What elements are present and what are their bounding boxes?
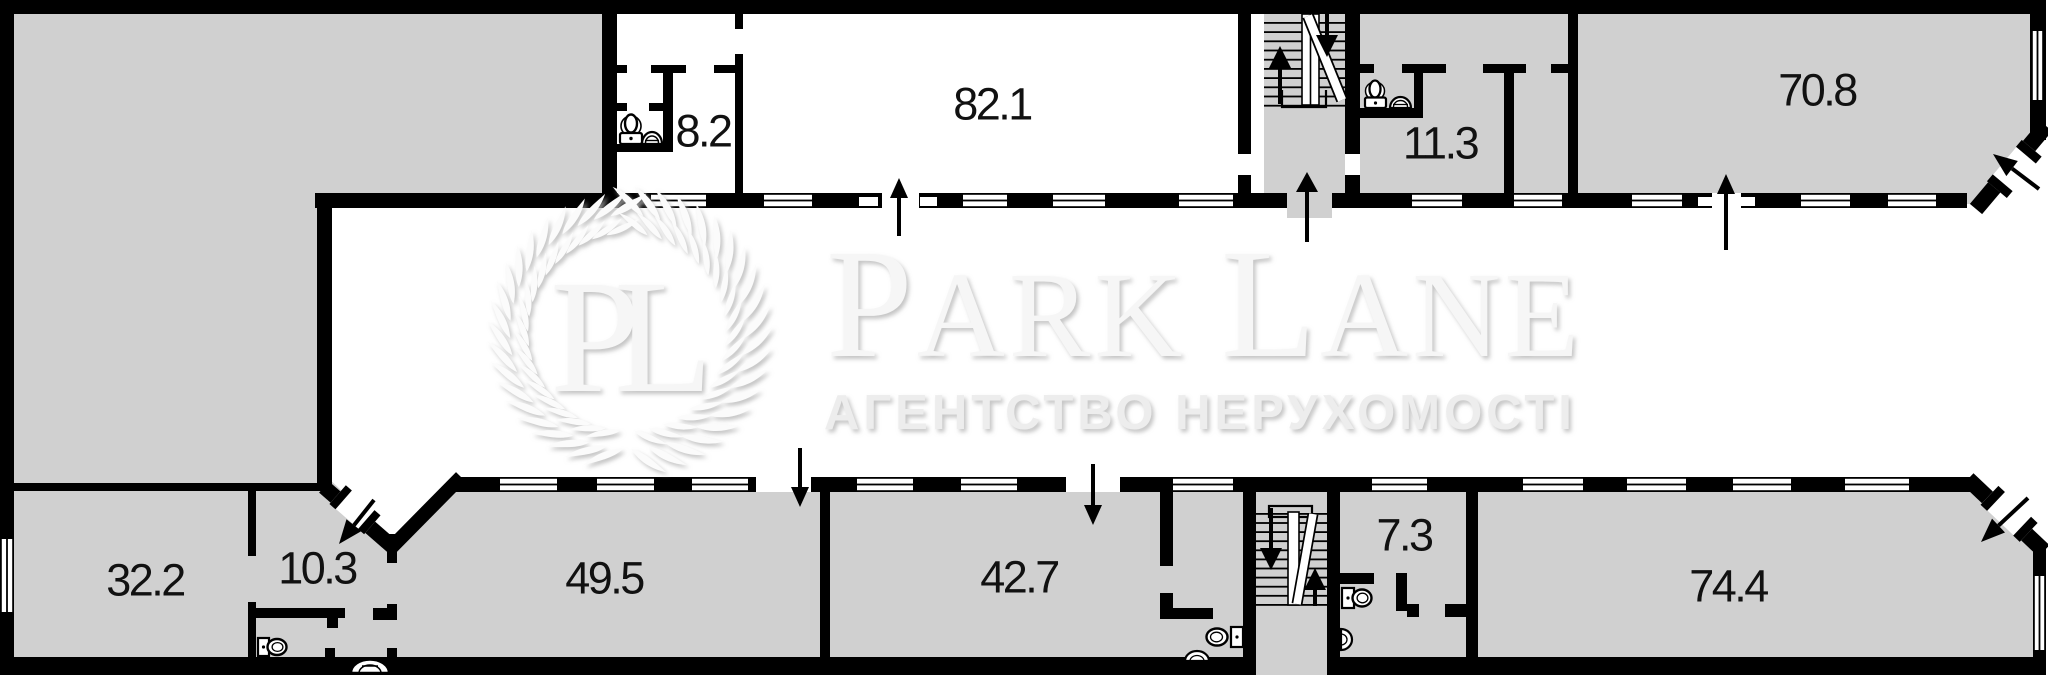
svg-text:7.3: 7.3 [1376, 510, 1433, 561]
svg-text:АГЕНТСТВО НЕРУХОМОСТІ: АГЕНТСТВО НЕРУХОМОСТІ [824, 386, 1576, 440]
svg-text:11.3: 11.3 [1403, 118, 1479, 169]
svg-text:70.8: 70.8 [1778, 65, 1857, 116]
svg-text:10.3: 10.3 [278, 543, 357, 594]
svg-text:49.5: 49.5 [565, 553, 644, 604]
svg-text:8.2: 8.2 [675, 106, 731, 157]
svg-text:42.7: 42.7 [980, 552, 1058, 603]
svg-text:L: L [614, 248, 713, 427]
svg-text:82.1: 82.1 [953, 79, 1031, 130]
svg-text:32.2: 32.2 [106, 555, 184, 606]
svg-text:74.4: 74.4 [1689, 561, 1768, 612]
